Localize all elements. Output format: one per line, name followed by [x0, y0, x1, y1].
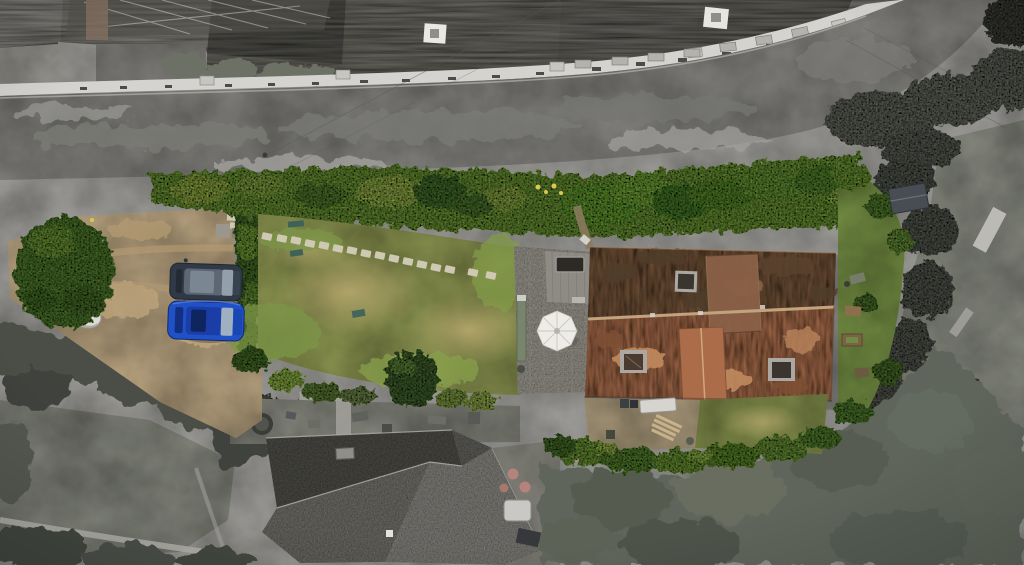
aerial-photo [0, 0, 1024, 565]
vignette-overlay [0, 0, 1024, 565]
